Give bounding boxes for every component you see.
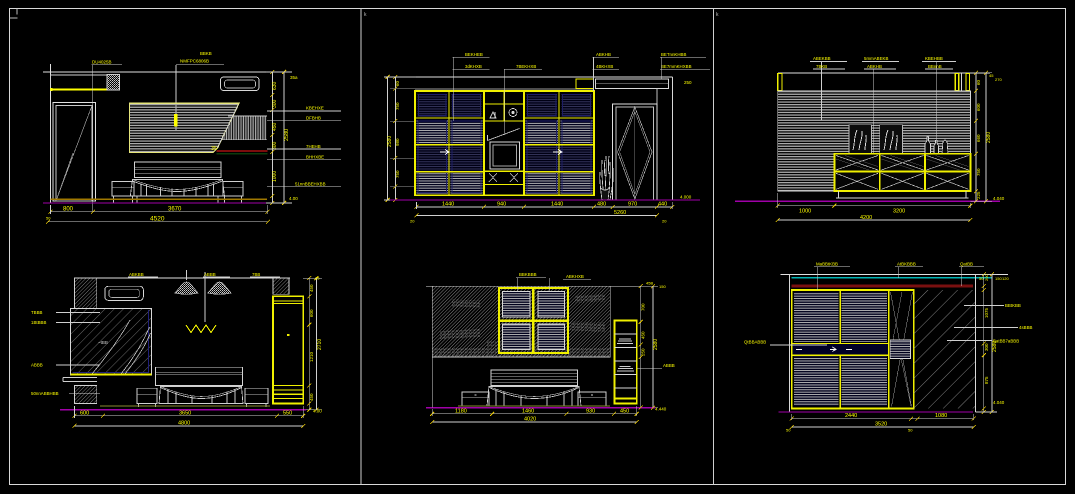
svg-text:ABKBB: ABKBB — [129, 272, 144, 277]
svg-text:7HEHB: 7HEHB — [306, 144, 321, 149]
svg-text:20: 20 — [662, 219, 667, 224]
svg-text:800: 800 — [63, 207, 74, 213]
svg-text:51nnBBEHXBB: 51nnBBEHXBB — [295, 182, 326, 187]
svg-text:BETnnKHBB: BETnnKHBB — [661, 52, 686, 57]
svg-text:BBKB: BBKB — [200, 51, 212, 56]
svg-text:700: 700 — [641, 303, 646, 311]
svg-text:1000: 1000 — [272, 171, 278, 182]
svg-text:ABEKBB: ABEKBB — [813, 56, 831, 61]
svg-text:3dKHXB: 3dKHXB — [465, 64, 482, 69]
svg-text:2580: 2580 — [653, 339, 659, 350]
svg-text:4200: 4200 — [860, 215, 872, 221]
svg-text:ABKHB: ABKHB — [867, 64, 882, 69]
svg-text:60: 60 — [395, 80, 400, 86]
svg-text:300: 300 — [272, 99, 278, 108]
svg-text:BatBB7aBBB: BatBB7aBBB — [993, 338, 1019, 343]
svg-text:450: 450 — [272, 122, 278, 131]
svg-text:4020: 4020 — [524, 417, 536, 423]
svg-text:1075: 1075 — [984, 307, 989, 318]
svg-text:600: 600 — [976, 103, 981, 111]
svg-text:660: 660 — [976, 134, 981, 142]
svg-text:35a: 35a — [290, 75, 298, 80]
svg-text:BE7mmKHXBB: BE7mmKHXBB — [661, 64, 692, 69]
svg-text:940: 940 — [497, 202, 506, 208]
svg-text:45B: 45B — [646, 281, 653, 286]
svg-text:4520: 4520 — [150, 216, 165, 223]
svg-text:1440: 1440 — [551, 202, 563, 208]
svg-text:7BKB: 7BKB — [816, 64, 827, 69]
svg-text:35: 35 — [211, 146, 217, 152]
svg-text:BBtKBB: BBtKBB — [1005, 303, 1021, 308]
svg-text:450: 450 — [309, 393, 314, 401]
svg-text:50: 50 — [786, 428, 791, 433]
svg-text:300: 300 — [984, 343, 989, 351]
svg-text:4BKHXB: 4BKHXB — [596, 64, 613, 69]
svg-text:4sBBB: 4sBBB — [1019, 325, 1032, 330]
svg-text:50: 50 — [908, 428, 913, 433]
svg-text:2580: 2580 — [387, 136, 393, 147]
svg-text:440: 440 — [658, 202, 667, 208]
svg-text:150: 150 — [659, 284, 666, 289]
svg-text:60: 60 — [976, 79, 981, 85]
svg-text:600: 600 — [80, 410, 89, 416]
svg-text:ABBB: ABBB — [204, 272, 216, 277]
svg-text:930: 930 — [586, 408, 595, 414]
svg-text:1440: 1440 — [442, 202, 454, 208]
svg-text:480: 480 — [597, 202, 606, 208]
svg-text:5mmABEKB: 5mmABEKB — [864, 56, 888, 61]
svg-text:1210: 1210 — [309, 351, 314, 362]
svg-text:1000: 1000 — [799, 209, 811, 215]
svg-text:750: 750 — [395, 170, 400, 178]
svg-text:200: 200 — [984, 274, 989, 281]
svg-text:BHHXBE: BHHXBE — [306, 154, 324, 159]
svg-text:45: 45 — [989, 73, 994, 78]
svg-text:4.00: 4.00 — [289, 196, 298, 201]
svg-text:50: 50 — [46, 216, 51, 221]
svg-text:4.040: 4.040 — [993, 400, 1005, 405]
svg-text:35: 35 — [315, 276, 320, 281]
svg-text:3200: 3200 — [893, 209, 905, 215]
svg-text:270: 270 — [995, 77, 1002, 82]
svg-text:20: 20 — [410, 219, 415, 224]
svg-text:2580: 2580 — [284, 129, 290, 141]
svg-text:2710: 2710 — [317, 339, 323, 350]
svg-text:BBKBBB: BBKBBB — [519, 272, 537, 277]
svg-text:750: 750 — [976, 168, 981, 176]
svg-text:2440: 2440 — [845, 413, 857, 419]
svg-text:3650: 3650 — [179, 410, 191, 416]
svg-text:50nnABBHBB: 50nnABBHBB — [31, 391, 59, 396]
svg-text:450: 450 — [309, 284, 314, 292]
svg-text:7BEKHXB: 7BEKHXB — [516, 64, 536, 69]
svg-text:ABBB: ABBB — [663, 363, 675, 368]
svg-text:BEKHEB: BEKHEB — [465, 52, 483, 57]
svg-text:250: 250 — [641, 348, 646, 356]
svg-text:KBEHBB: KBEHBB — [925, 56, 943, 61]
svg-text:2580: 2580 — [986, 132, 992, 143]
svg-text:4800: 4800 — [178, 421, 190, 427]
svg-text:750: 750 — [395, 102, 400, 110]
svg-text:250: 250 — [684, 80, 692, 85]
svg-text:3520: 3520 — [875, 422, 887, 428]
svg-text:MaBBtKBB: MaBBtKBB — [816, 261, 838, 266]
svg-text:4.00: 4.00 — [313, 409, 322, 414]
svg-text:450: 450 — [641, 331, 646, 339]
svg-text:DU4025B: DU4025B — [92, 60, 112, 65]
svg-text:1BtBBB: 1BtBBB — [31, 320, 46, 325]
svg-text:630: 630 — [272, 81, 278, 90]
svg-text:QtBBABBB: QtBBABBB — [744, 340, 766, 345]
svg-text:1080: 1080 — [935, 413, 947, 419]
svg-text:5260: 5260 — [614, 210, 626, 216]
svg-text:550: 550 — [283, 410, 292, 416]
svg-text:DFBHB: DFBHB — [306, 115, 321, 120]
svg-text:1460: 1460 — [522, 408, 534, 414]
svg-text:ABBB: ABBB — [31, 363, 43, 368]
svg-text:7BB: 7BB — [252, 272, 260, 277]
svg-text:4.040: 4.040 — [993, 196, 1005, 201]
svg-text:600: 600 — [309, 309, 314, 317]
svg-text:TBBB: TBBB — [31, 310, 43, 315]
svg-text:120: 120 — [1002, 276, 1009, 281]
svg-text:875: 875 — [984, 376, 989, 384]
svg-text:3670: 3670 — [168, 207, 182, 213]
svg-text:QatBB: QatBB — [960, 261, 973, 266]
svg-text:AtBKBBB: AtBKBBB — [897, 261, 916, 266]
svg-text:450: 450 — [620, 408, 629, 414]
svg-text:KBEHXE: KBEHXE — [306, 106, 324, 111]
svg-text:NMFPC6806B: NMFPC6806B — [180, 59, 209, 64]
svg-text:1180: 1180 — [455, 408, 467, 414]
svg-text:970: 970 — [628, 202, 637, 208]
svg-text:4.000: 4.000 — [680, 195, 692, 200]
svg-text:ABKHB: ABKHB — [596, 52, 611, 57]
svg-text:980: 980 — [395, 138, 400, 146]
svg-text:BBnnB: BBnnB — [928, 64, 942, 69]
svg-text:4.440: 4.440 — [655, 407, 667, 412]
svg-text:ABKHXB: ABKHXB — [566, 274, 584, 279]
svg-text:~tBB: ~tBB — [98, 340, 108, 345]
svg-text:225: 225 — [976, 191, 981, 199]
